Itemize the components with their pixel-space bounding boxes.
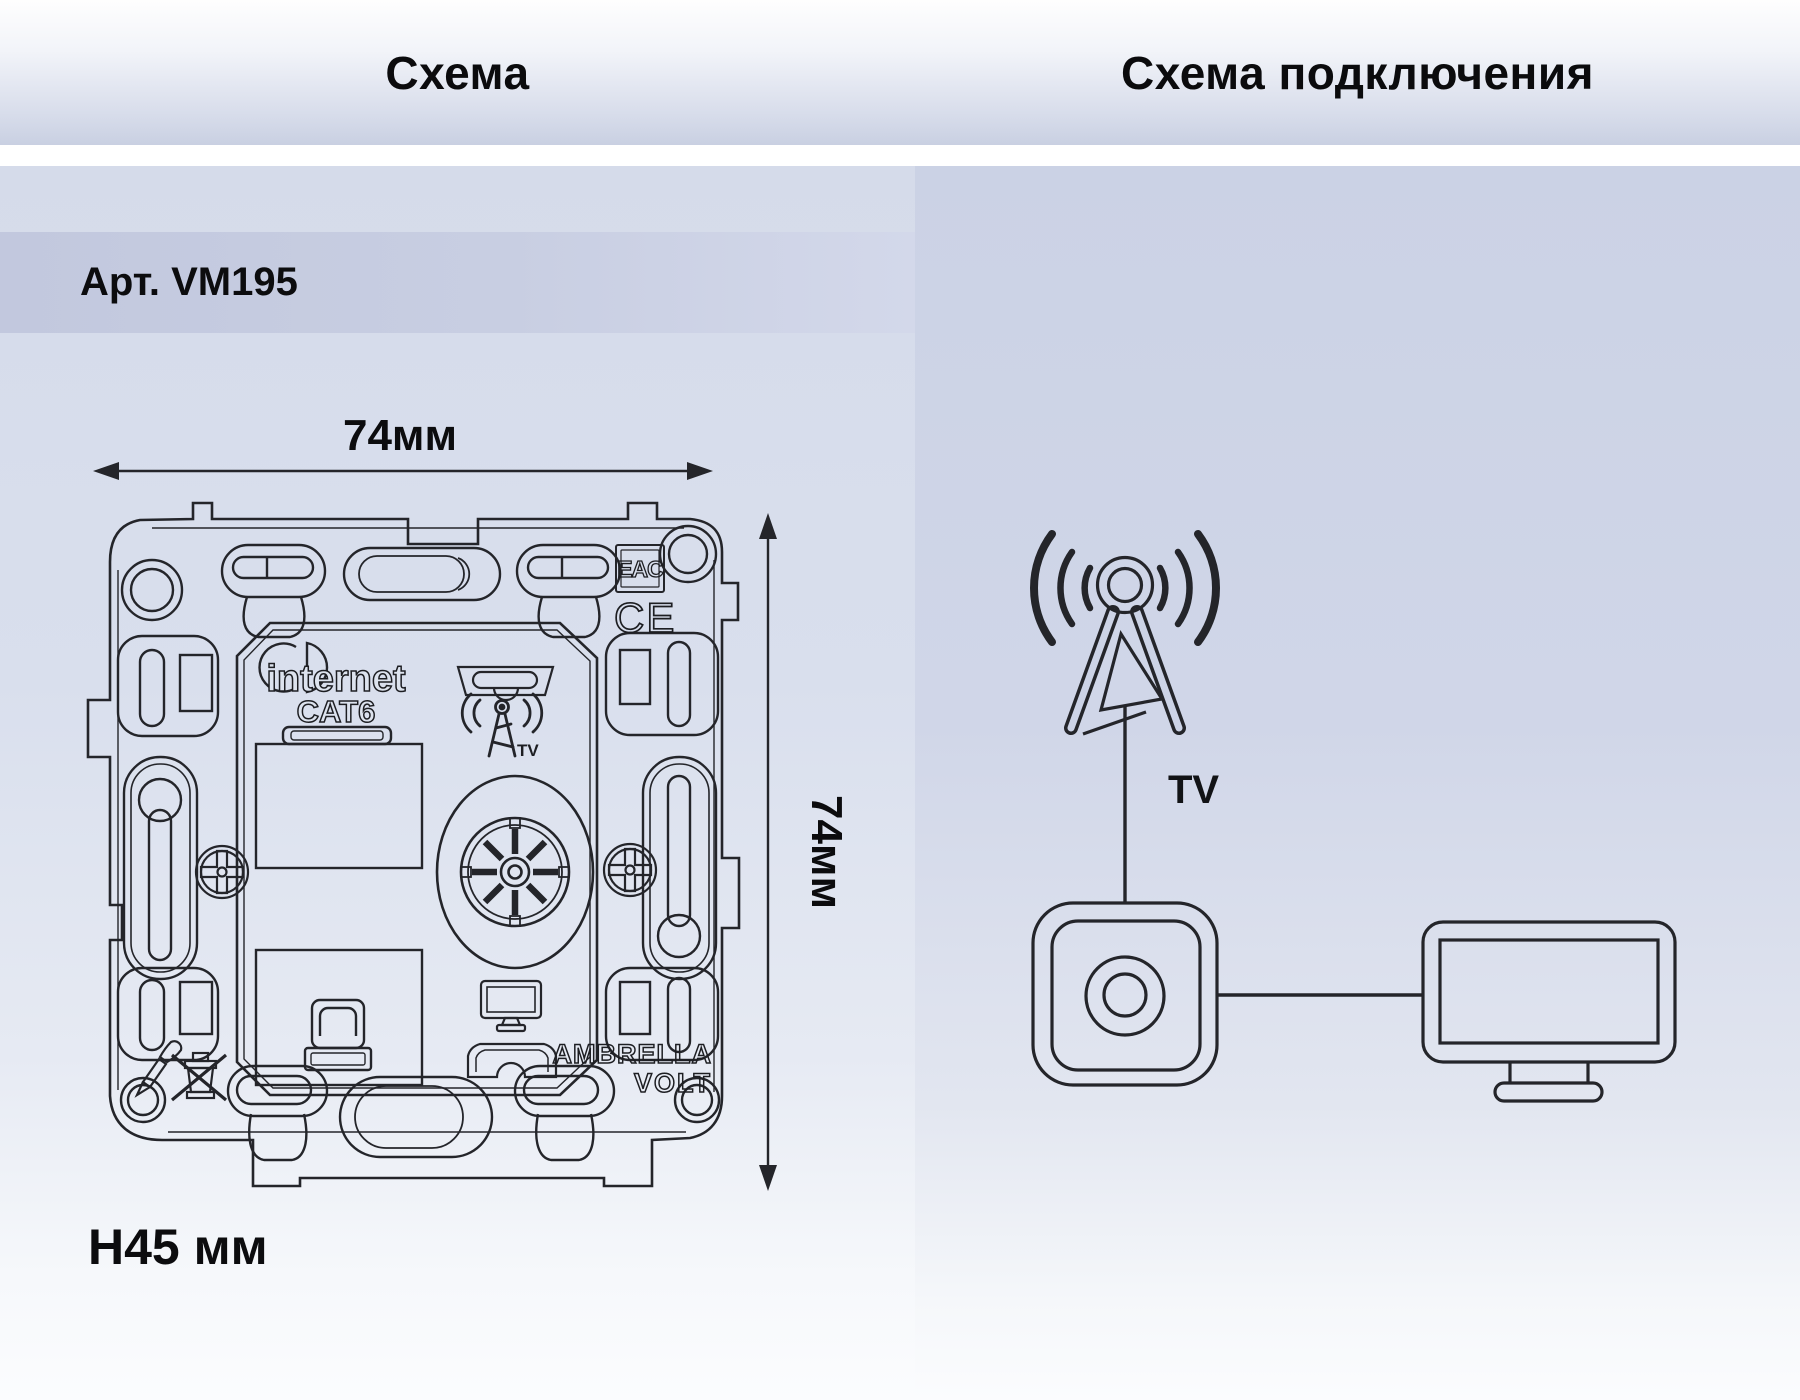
cable-clamp (468, 1044, 556, 1077)
technical-drawing: 74мм 74мм (80, 410, 870, 1210)
antenna-tv-icon: TV (462, 694, 542, 760)
width-dimension-label: 74мм (343, 411, 457, 460)
adjust-screw-right (604, 844, 656, 896)
connection-diagram: TV (900, 430, 1800, 1130)
signal-waves (1034, 534, 1216, 642)
header-row: Схема Схема подключения (0, 0, 1800, 145)
height-dimension: 74мм (759, 513, 851, 1191)
bottom-center-slot (340, 1077, 492, 1157)
screwdriver-icon (137, 1041, 181, 1095)
oval-slot-right (643, 757, 716, 979)
eac-mark: EAC (616, 545, 664, 592)
screw-hole-top-left (122, 560, 182, 620)
rj45-jack (256, 727, 422, 1085)
adjust-screw-left (196, 846, 248, 898)
header-scheme: Схема (0, 0, 915, 145)
monitor-icon (481, 981, 541, 1031)
level-indicator (458, 667, 553, 700)
brand-line1: AMBRELLA (553, 1039, 712, 1069)
article-band: Арт. VM195 (0, 232, 915, 333)
side-claw-right-top (606, 633, 718, 735)
brand-line2: VOLT (634, 1068, 712, 1098)
divider-strip (0, 145, 1800, 166)
mount-depth-label: H45 мм (88, 1218, 268, 1276)
eac-text: EAC (617, 556, 663, 582)
coax-tv-connector (437, 776, 593, 968)
screw-hole-top-right (660, 526, 716, 582)
brand-label: AMBRELLA VOLT (553, 1039, 712, 1098)
ce-mark: CE (614, 594, 676, 641)
do-not-dispose-icon (172, 1053, 226, 1100)
side-claw-left-top (118, 636, 218, 736)
tv-port-label: TV (517, 741, 539, 760)
tv-cable-label: TV (1168, 768, 1219, 812)
height-dimension-label: 74мм (802, 795, 851, 909)
top-center-slot (344, 548, 500, 600)
product-infographic: { "header": { "left": "Схема", "right": … (0, 0, 1800, 1400)
width-dimension: 74мм (93, 411, 713, 480)
tv-monitor-icon (1423, 922, 1675, 1101)
oval-slot-left (124, 757, 197, 979)
cat6-label: CAT6 (297, 694, 376, 729)
antenna-tower-icon (1034, 534, 1216, 734)
wall-socket-icon (1033, 903, 1217, 1085)
header-connection-scheme: Схема подключения (915, 0, 1800, 145)
article-label: Арт. VM195 (80, 260, 298, 305)
mounting-claw-bottom-left (228, 1066, 327, 1160)
